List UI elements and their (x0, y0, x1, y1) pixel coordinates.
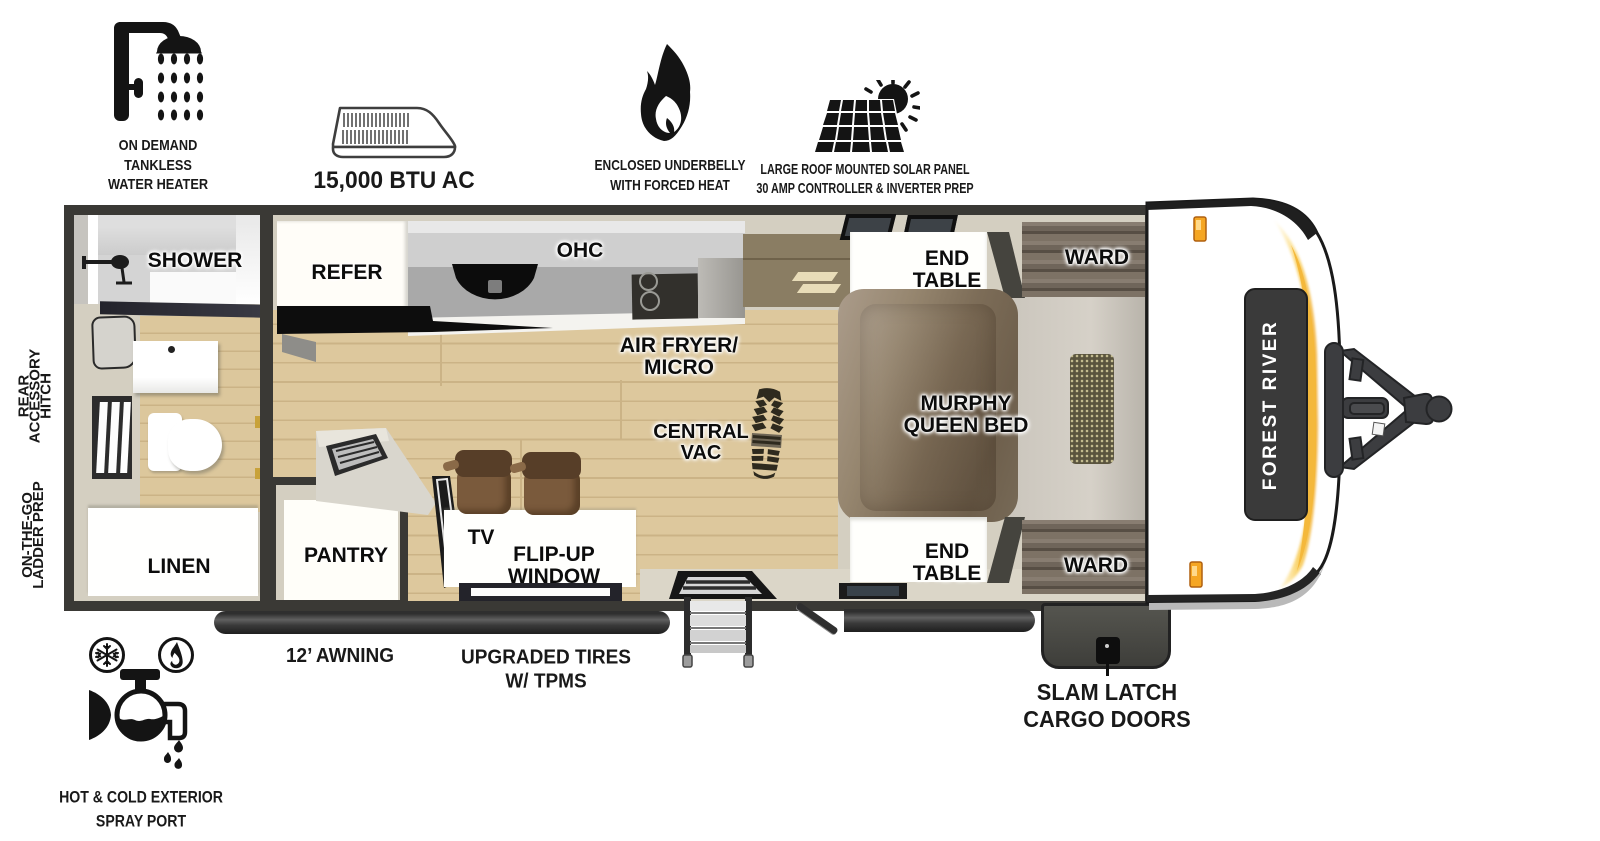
svg-text:FOREST RIVER: FOREST RIVER (1260, 320, 1281, 490)
